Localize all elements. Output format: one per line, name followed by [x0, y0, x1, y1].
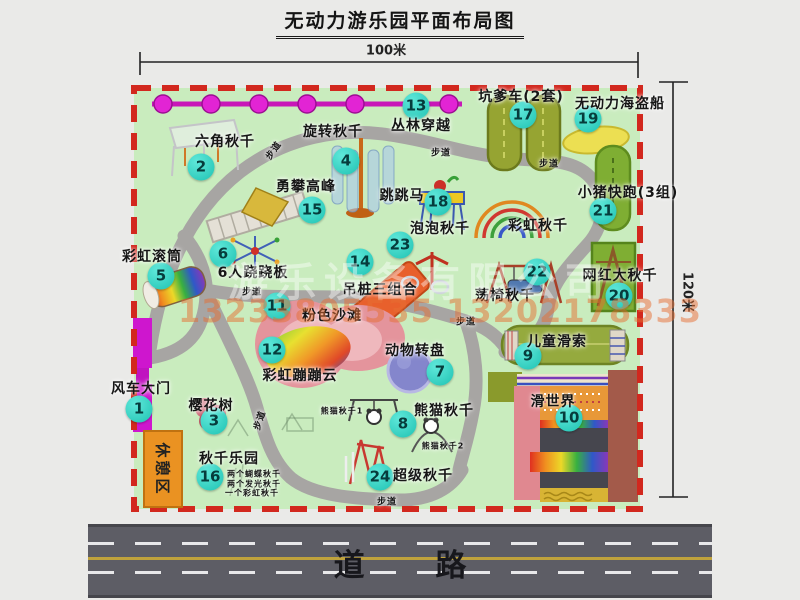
rest-area-label: 休憩区 [153, 442, 174, 496]
attraction-label-6: 6人跷跷板 [218, 262, 289, 282]
attraction-label-11: 粉色沙滩 [302, 305, 362, 325]
attraction-label-3: 樱花树 [189, 395, 234, 415]
attraction-badge-11: 11 [264, 293, 291, 320]
attraction-label-21: 小猪快跑(3组) [578, 182, 679, 202]
map-annotation-label: 熊猫秋千1 [321, 406, 364, 417]
dimension-right-label: 120米 [680, 272, 699, 312]
map-annotation-label: 步道 [539, 157, 559, 170]
attraction-label-20: 网红大秋千 [583, 265, 658, 285]
map-annotation-label: 步道 [242, 285, 262, 298]
attraction-label-23: 泡泡秋千 [410, 218, 470, 238]
attraction-label-18: 跳跳马 [380, 185, 425, 205]
title-bar: 无动力游乐园平面布局图 [0, 6, 800, 39]
attraction-label-2: 六角秋千 [195, 131, 255, 151]
attraction-badge-24: 24 [367, 464, 394, 491]
layout-poster: 无动力游乐园平面布局图 [0, 0, 800, 600]
attraction-badge-15: 15 [299, 197, 326, 224]
attraction-label-15: 勇攀高峰 [276, 176, 336, 196]
attraction-label-16: 秋千乐园 [199, 448, 259, 468]
attraction-label-13: 丛林穿越 [391, 115, 451, 135]
attraction-label-12: 彩虹蹦蹦云 [263, 365, 338, 385]
map-annotation-label: 步道 [431, 146, 451, 159]
attraction-label-4: 旋转秋千 [303, 121, 363, 141]
attraction-badge-14: 14 [347, 249, 374, 276]
map-annotation-label: 步道 [377, 495, 397, 508]
attraction-badge-2: 2 [188, 154, 215, 181]
attraction-label-14: 吊桩三组合 [343, 279, 418, 299]
attraction-label-17: 坑爹车(2套) [478, 86, 564, 106]
attraction-badge-8: 8 [390, 411, 417, 438]
attraction-label-24: 超级秋千 [393, 465, 453, 485]
attraction-label-22: 荡椅秋千 [475, 285, 535, 305]
map-annotation-label: 一个彩虹秋千 [225, 488, 279, 499]
attraction-label-7: 动物转盘 [385, 340, 445, 360]
attraction-badge-4: 4 [333, 148, 360, 175]
dimension-top-label: 100米 [366, 40, 406, 59]
map-annotation-label: 彩虹秋千 [508, 215, 568, 235]
attraction-badge-20: 20 [606, 283, 633, 310]
attraction-label-1: 风车大门 [111, 378, 171, 398]
attraction-label-8: 熊猫秋千 [414, 400, 474, 420]
attraction-label-9: 儿童滑索 [527, 331, 587, 351]
attraction-badge-7: 7 [427, 359, 454, 386]
rest-area: 休憩区 [143, 430, 183, 508]
attraction-badge-5: 5 [148, 263, 175, 290]
attraction-badge-1: 1 [126, 396, 153, 423]
attraction-badge-12: 12 [259, 337, 286, 364]
attraction-label-19: 无动力海盗船 [575, 93, 665, 113]
map-annotation-label: 步道 [456, 315, 476, 328]
attraction-label-5: 彩虹滚筒 [122, 246, 182, 266]
map-annotation-label: 熊猫秋千2 [422, 441, 465, 452]
attraction-badge-22: 22 [524, 259, 551, 286]
attraction-badge-18: 18 [425, 189, 452, 216]
page-title: 无动力游乐园平面布局图 [276, 6, 523, 39]
attraction-label-10: 滑世界 [531, 391, 576, 411]
